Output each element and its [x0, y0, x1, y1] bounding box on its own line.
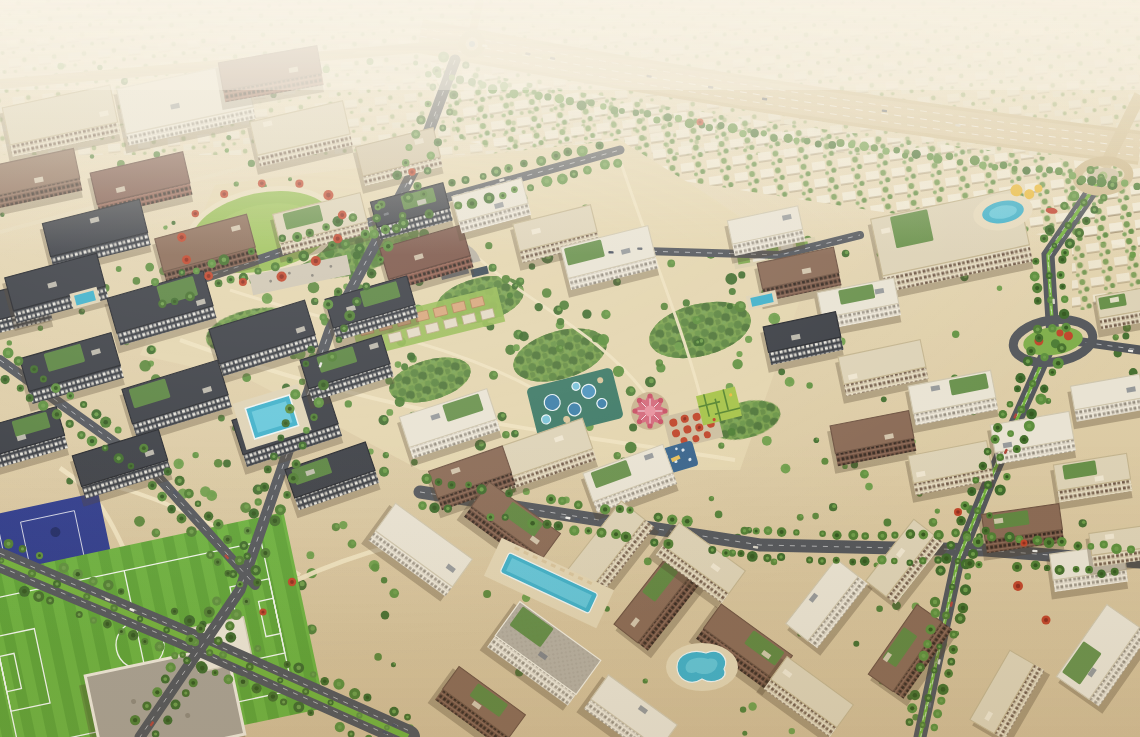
aerial-render-svg: Aerial 3D masterplan rendering of a dese… [0, 0, 1140, 737]
masterplan-aerial-image: Aerial 3D masterplan rendering of a dese… [0, 0, 1140, 737]
atmospheric-haze [0, 0, 1140, 737]
